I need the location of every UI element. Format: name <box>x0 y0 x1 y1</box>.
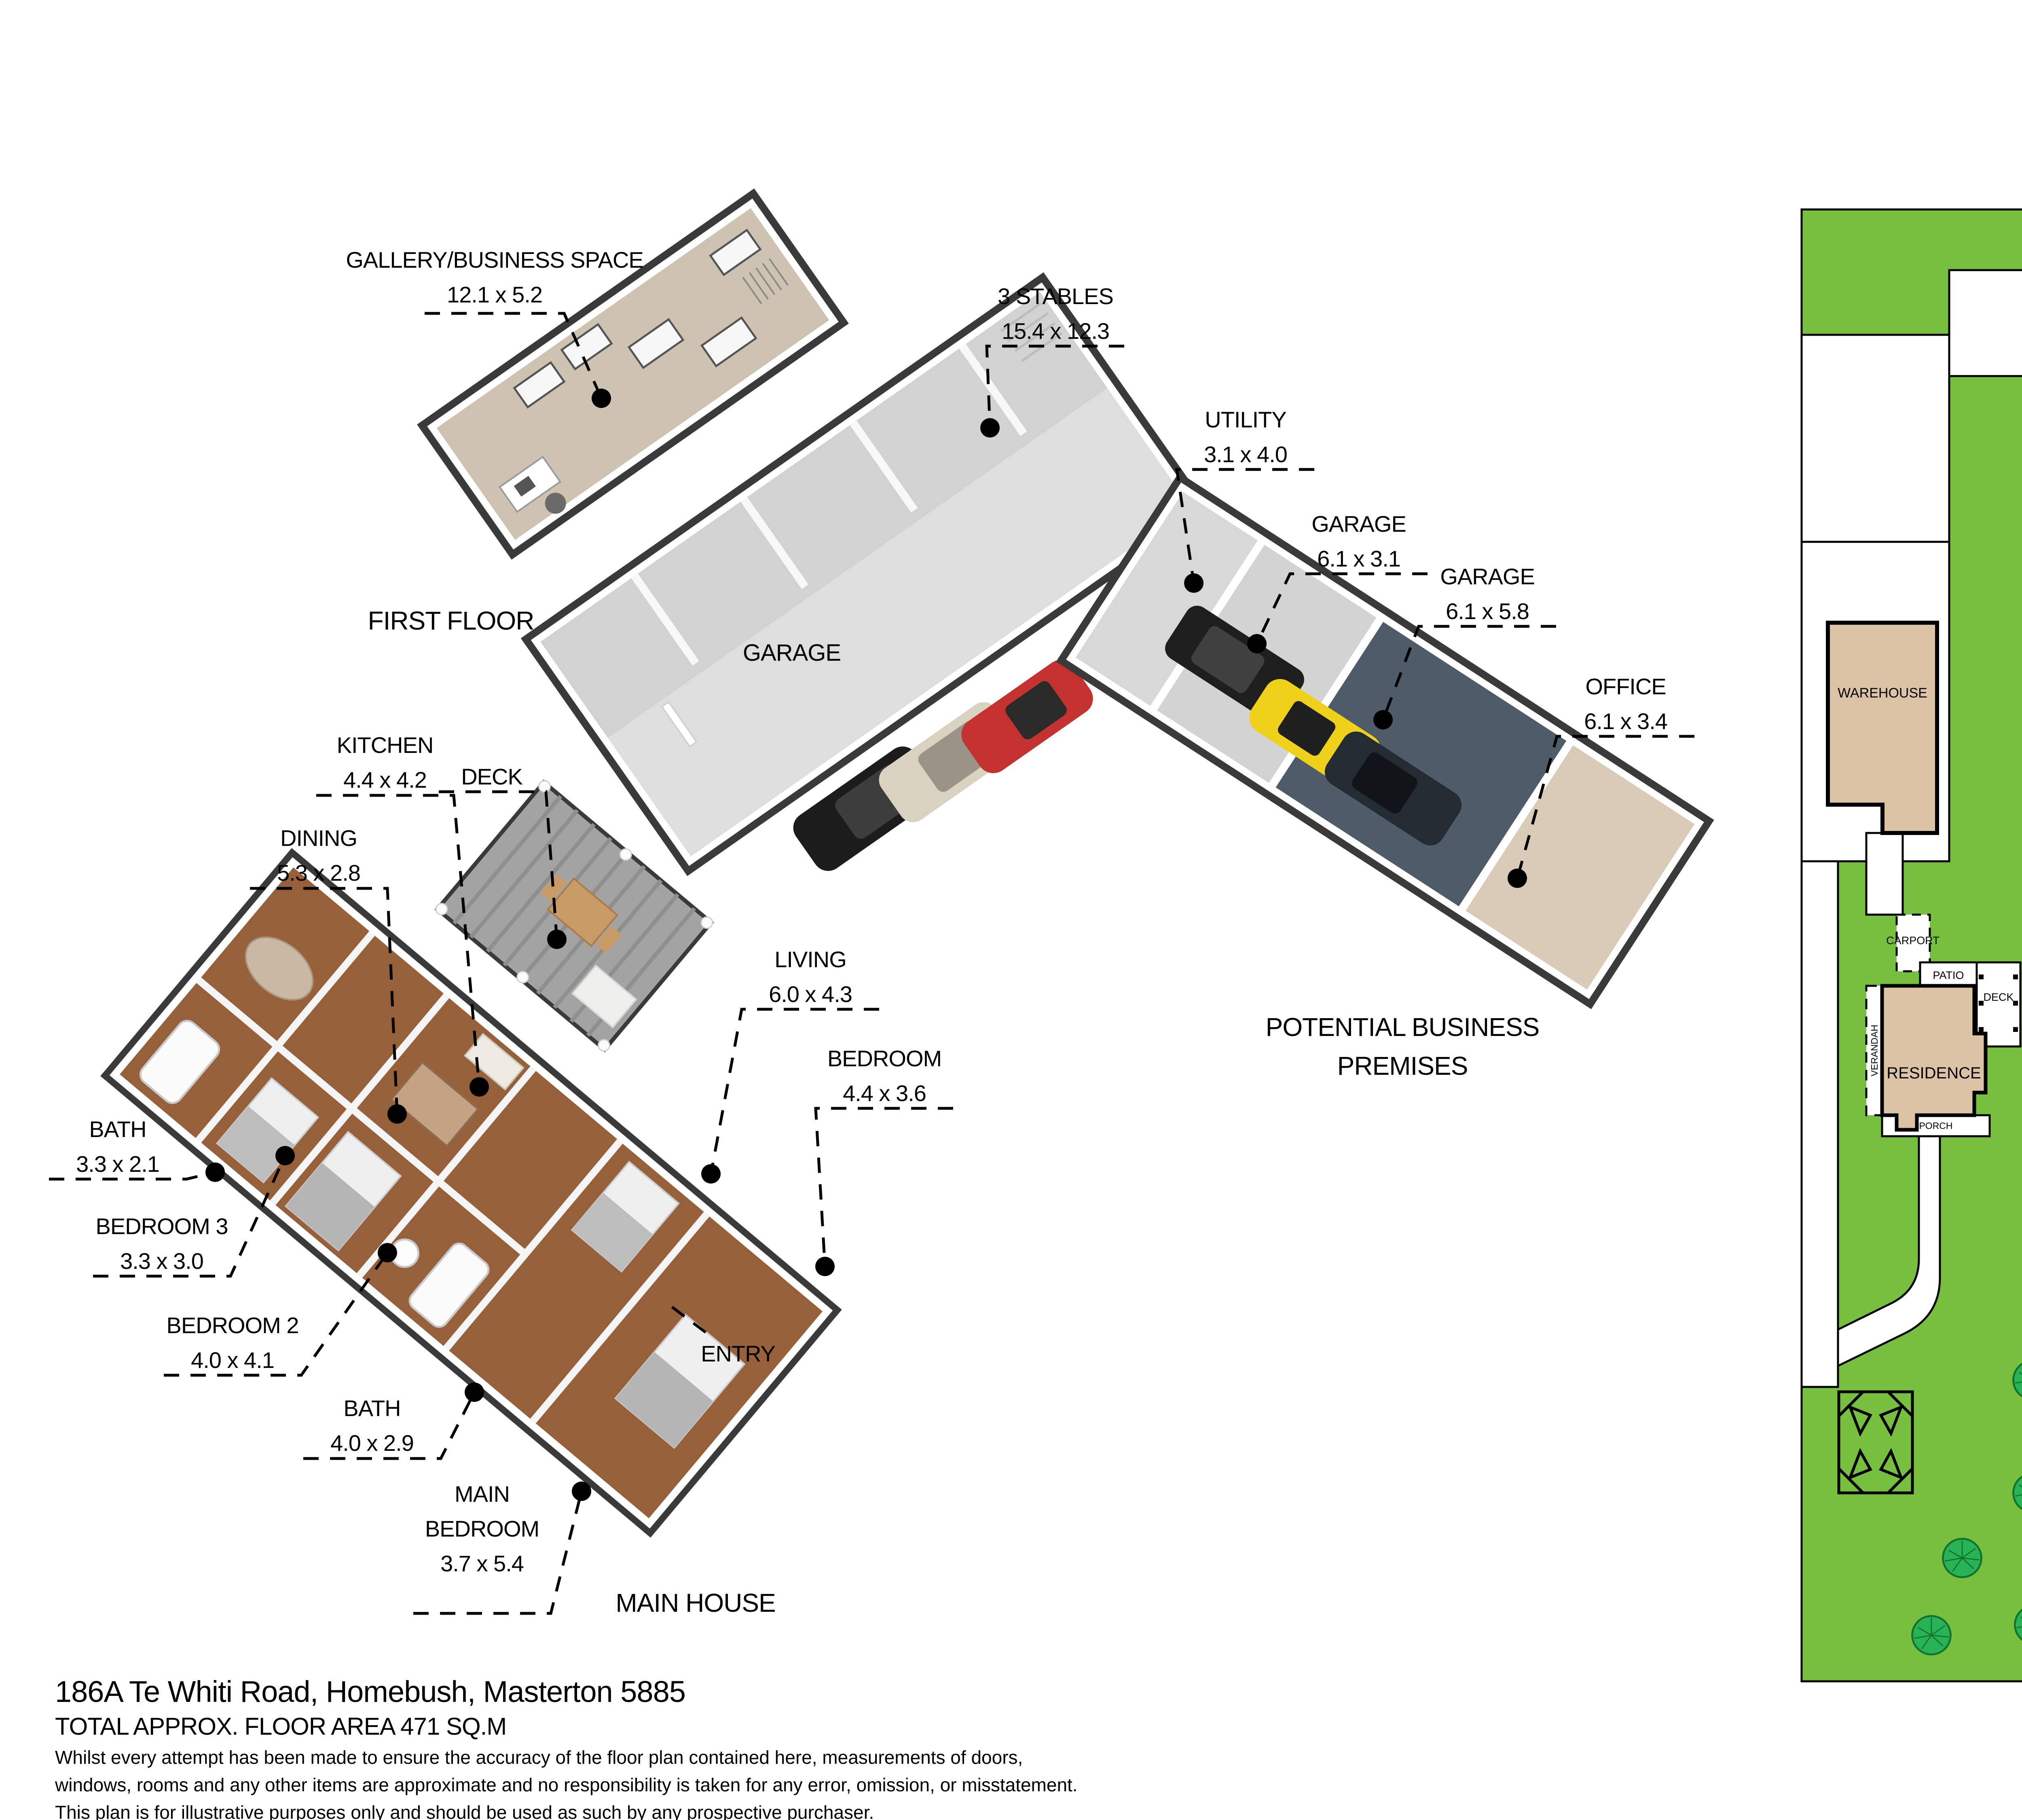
label-garage-2: GARAGE6.1 x 5.8 <box>1366 559 1609 629</box>
label-office: OFFICE6.1 x 3.4 <box>1504 669 1747 739</box>
label-dining: DINING5.3 x 2.8 <box>197 821 440 890</box>
site-label-carport: CARPORT <box>1868 934 1957 947</box>
disclaimer-text: Whilst every attempt has been made to en… <box>55 1744 1753 1820</box>
floor-plan-graphics <box>0 0 2022 1820</box>
site-label-warehouse: WAREHOUSE <box>1828 683 1937 703</box>
site-label-site-deck: DECK <box>1977 991 2020 1004</box>
label-utility: UTILITY3.1 x 4.0 <box>1124 402 1367 472</box>
site-label-porch: PORCH <box>1882 1120 1990 1131</box>
label-gallery: GALLERY/BUSINESS SPACE12.1 x 5.2 <box>329 243 660 312</box>
label-bath-2: BATH4.0 x 2.9 <box>271 1391 473 1461</box>
caption-first-floor: FIRST FLOOR <box>330 601 572 640</box>
label-bath-1: BATH3.3 x 2.1 <box>17 1112 219 1182</box>
label-bedroom-3: BEDROOM 33.3 x 3.0 <box>40 1209 283 1279</box>
caption-business-premises: POTENTIAL BUSINESS PREMISES <box>1233 1008 1572 1085</box>
total-floor-area: TOTAL APPROX. FLOOR AREA 471 SQ.M <box>55 1710 1753 1744</box>
label-entry: ENTRY <box>657 1336 819 1371</box>
floor-plan-page: FIRST FLOOR MAIN HOUSE POTENTIAL BUSINES… <box>0 0 2022 1820</box>
label-stables: 3 STABLES15.4 x 12.3 <box>934 279 1177 349</box>
label-bedroom: BEDROOM4.4 x 3.6 <box>763 1041 1006 1111</box>
label-living: LIVING6.0 x 4.3 <box>689 942 932 1012</box>
label-garage-main: GARAGE <box>711 639 873 667</box>
label-deck: DECK <box>411 759 573 794</box>
label-main-bedroom: MAIN BEDROOM3.7 x 5.4 <box>409 1477 555 1581</box>
caption-main-house: MAIN HOUSE <box>574 1583 817 1622</box>
site-label-verandah: VERANDAH <box>1869 1010 1880 1091</box>
site-label-patio: PATIO <box>1920 969 1977 982</box>
label-bedroom-2: BEDROOM 24.0 x 4.1 <box>111 1308 354 1378</box>
footer-block: 186A Te Whiti Road, Homebush, Masterton … <box>55 1674 1753 1820</box>
site-label-residence: RESIDENCE <box>1882 1063 1986 1083</box>
property-address: 186A Te Whiti Road, Homebush, Masterton … <box>55 1674 1753 1710</box>
